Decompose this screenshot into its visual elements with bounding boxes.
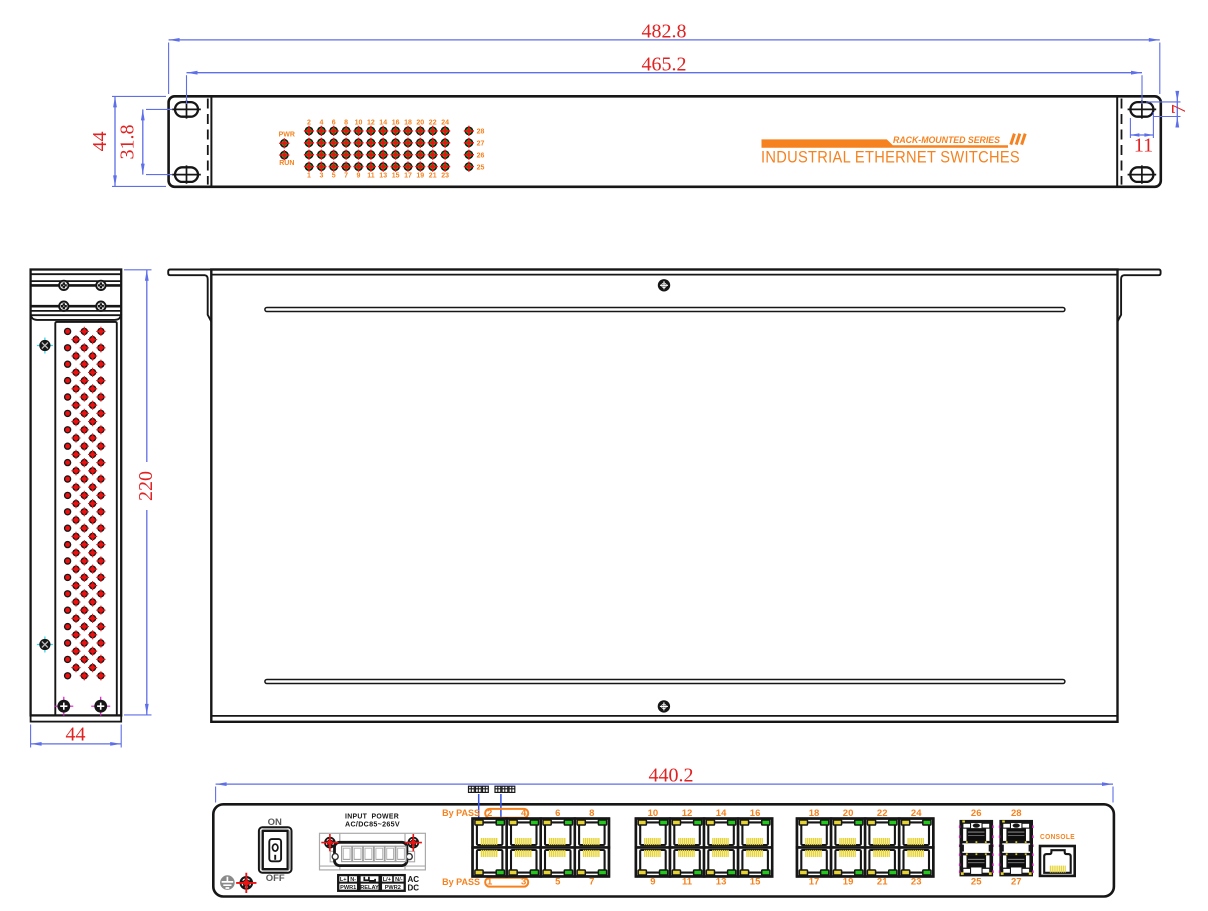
svg-text:28: 28 [1011, 808, 1022, 819]
svg-text:18: 18 [809, 808, 820, 819]
svg-text:9: 9 [650, 877, 655, 888]
svg-text:11: 11 [1134, 135, 1153, 157]
svg-text:10: 10 [355, 120, 363, 127]
svg-text:25: 25 [971, 877, 982, 888]
svg-text:N-: N- [350, 877, 356, 883]
svg-text:AC/DC85~265V: AC/DC85~265V [345, 819, 401, 828]
svg-text:L/+: L/+ [383, 877, 392, 883]
svg-text:19: 19 [416, 172, 424, 179]
svg-text:DC: DC [408, 884, 420, 893]
svg-text:OFF: OFF [266, 873, 285, 884]
svg-text:12: 12 [367, 120, 375, 127]
svg-text:44: 44 [89, 131, 111, 151]
svg-text:16: 16 [750, 808, 761, 819]
svg-text:4: 4 [319, 120, 323, 127]
svg-text:ON: ON [268, 817, 282, 828]
svg-text:31.8: 31.8 [117, 125, 139, 160]
svg-text:25: 25 [477, 164, 485, 171]
svg-text:N/-: N/- [395, 877, 403, 883]
svg-text:19: 19 [843, 877, 854, 888]
svg-text:4: 4 [521, 808, 527, 819]
svg-text:3: 3 [319, 172, 323, 179]
svg-text:1: 1 [487, 877, 493, 888]
svg-text:23: 23 [911, 877, 922, 888]
svg-text:PWR1: PWR1 [340, 885, 356, 891]
svg-text:26: 26 [477, 153, 485, 160]
svg-text:20: 20 [843, 808, 854, 819]
svg-text:RACK-MOUNTED SERIES: RACK-MOUNTED SERIES [893, 135, 1000, 145]
svg-text:14: 14 [379, 120, 387, 127]
svg-text:44: 44 [66, 724, 86, 746]
svg-text:27: 27 [1011, 877, 1022, 888]
svg-text:28: 28 [477, 129, 485, 136]
svg-text:17: 17 [809, 877, 820, 888]
svg-text:12: 12 [682, 808, 693, 819]
svg-text:18: 18 [404, 120, 412, 127]
svg-text:3: 3 [521, 877, 526, 888]
svg-text:2: 2 [487, 808, 492, 819]
svg-text:RUN: RUN [279, 160, 294, 167]
svg-text:By PASS: By PASS [442, 808, 480, 818]
svg-text:24: 24 [911, 808, 922, 819]
svg-text:440.2: 440.2 [649, 765, 694, 787]
svg-text:22: 22 [429, 120, 437, 127]
svg-text:10: 10 [648, 808, 659, 819]
svg-text:27: 27 [477, 141, 485, 148]
svg-text:13: 13 [716, 877, 727, 888]
svg-text:24: 24 [441, 120, 449, 127]
svg-text:15: 15 [750, 877, 761, 888]
svg-text:21: 21 [877, 877, 888, 888]
svg-text:465.2: 465.2 [642, 53, 687, 75]
svg-text:2: 2 [307, 120, 311, 127]
svg-text:9: 9 [357, 172, 361, 179]
svg-text:14: 14 [716, 808, 727, 819]
svg-text:11: 11 [367, 172, 375, 179]
svg-text:220: 220 [135, 471, 157, 501]
svg-text:22: 22 [877, 808, 888, 819]
svg-text:482.8: 482.8 [642, 21, 687, 43]
svg-text:1: 1 [307, 172, 311, 179]
svg-text:CONSOLE: CONSOLE [1040, 834, 1075, 841]
svg-text:21: 21 [429, 172, 437, 179]
svg-text:PWR: PWR [279, 132, 295, 139]
svg-text:RELAY: RELAY [360, 885, 379, 891]
svg-text:16: 16 [392, 120, 400, 127]
svg-text:23: 23 [441, 172, 449, 179]
svg-text:INDUSTRIAL ETHERNET SWITCHES: INDUSTRIAL ETHERNET SWITCHES [761, 148, 1020, 167]
svg-text:5: 5 [332, 172, 336, 179]
svg-text:11: 11 [682, 877, 693, 888]
svg-text:20: 20 [416, 120, 424, 127]
svg-text:26: 26 [971, 808, 982, 819]
svg-text:5: 5 [555, 877, 561, 888]
svg-text:8: 8 [344, 120, 348, 127]
svg-text:6: 6 [555, 808, 560, 819]
svg-text:17: 17 [404, 172, 412, 179]
svg-text:L+: L+ [340, 877, 347, 883]
svg-text:7: 7 [1168, 104, 1190, 114]
svg-text:8: 8 [589, 808, 594, 819]
svg-text:15: 15 [392, 172, 400, 179]
svg-text:7: 7 [344, 172, 348, 179]
svg-text:7: 7 [589, 877, 594, 888]
svg-text:By PASS: By PASS [442, 877, 480, 887]
svg-text:PWR2: PWR2 [385, 885, 401, 891]
svg-text:6: 6 [332, 120, 336, 127]
svg-text:13: 13 [379, 172, 387, 179]
